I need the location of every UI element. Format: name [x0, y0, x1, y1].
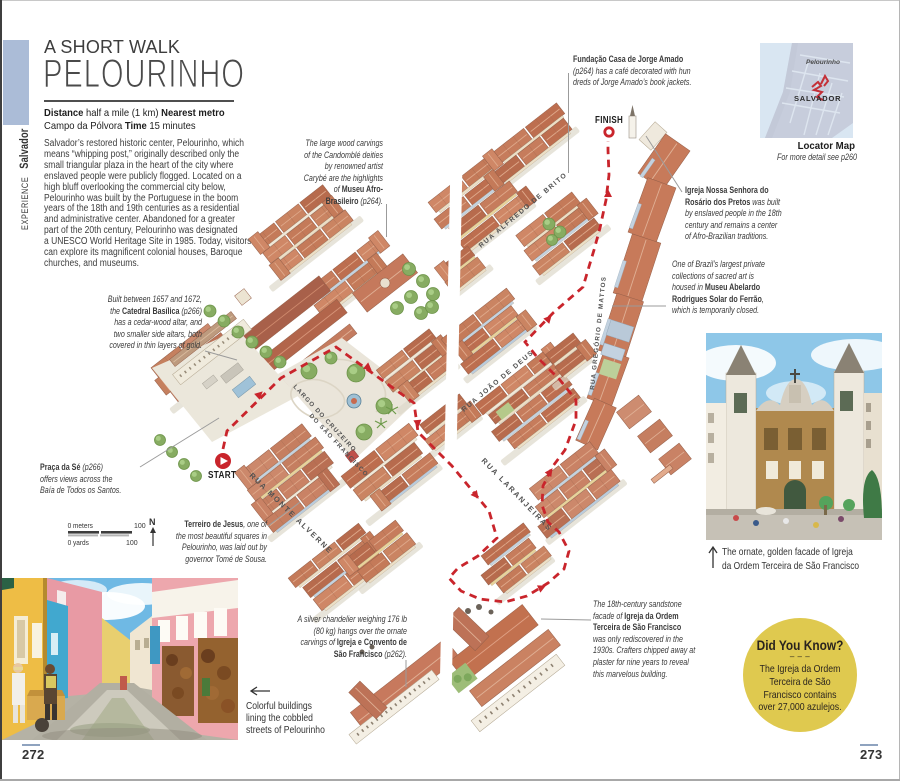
svg-text:Pelourinho: Pelourinho	[806, 59, 840, 66]
svg-text:SALVADOR: SALVADOR	[794, 94, 841, 103]
svg-text:0 yards: 0 yards	[68, 540, 90, 547]
svg-text:N: N	[149, 517, 156, 527]
svg-text:0 meters: 0 meters	[68, 523, 94, 530]
svg-text:100: 100	[126, 540, 138, 547]
